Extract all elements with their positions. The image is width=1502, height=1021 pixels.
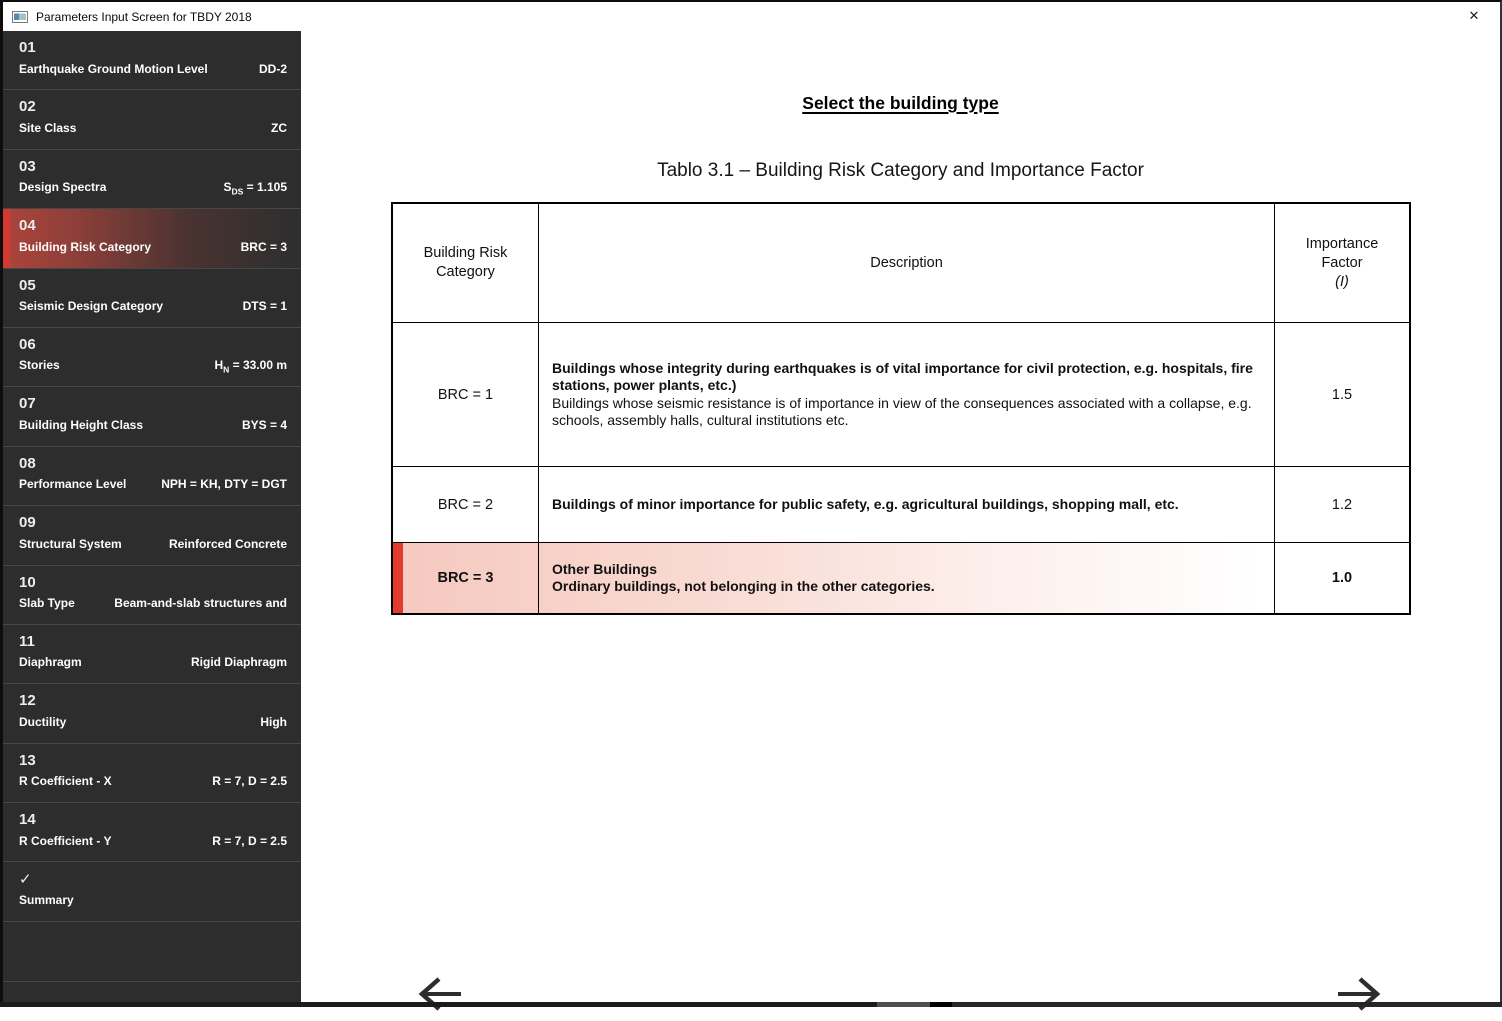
- step-number: 03: [19, 159, 287, 176]
- step-value: DD-2: [259, 62, 287, 76]
- value-subscript: DS: [231, 187, 243, 197]
- step-number: 06: [19, 337, 287, 354]
- step-label: Summary: [19, 893, 74, 907]
- back-arrow-button[interactable]: [415, 972, 467, 1016]
- sidebar-item-ductility[interactable]: 12 Ductility High: [3, 684, 301, 743]
- step-label: Seismic Design Category: [19, 299, 163, 313]
- step-value: HN = 33.00 m: [214, 358, 287, 374]
- table-caption: Tablo 3.1 – Building Risk Category and I…: [301, 160, 1500, 182]
- checkmark-icon: ✓: [19, 871, 287, 888]
- sidebar-item-building-height-class[interactable]: 07 Building Height Class BYS = 4: [3, 387, 301, 446]
- step-label: R Coefficient - X: [19, 774, 112, 788]
- sidebar-empty-cell: [3, 982, 301, 1002]
- sidebar-item-r-coefficient-y[interactable]: 14 R Coefficient - Y R = 7, D = 2.5: [3, 803, 301, 862]
- sidebar-item-seismic-design-category[interactable]: 05 Seismic Design Category DTS = 1: [3, 269, 301, 328]
- step-number: 10: [19, 575, 287, 592]
- window-title: Parameters Input Screen for TBDY 2018: [36, 10, 252, 24]
- sidebar-item-building-risk-category[interactable]: 04 Building Risk Category BRC = 3: [3, 209, 301, 268]
- step-value: SDS = 1.105: [223, 180, 287, 196]
- step-number: 05: [19, 278, 287, 295]
- description-cell: Other Buildings Ordinary buildings, not …: [539, 543, 1275, 613]
- step-number: 13: [19, 753, 287, 770]
- step-value: R = 7, D = 2.5: [212, 774, 287, 788]
- sidebar: 01 Earthquake Ground Motion Level DD-2 0…: [3, 31, 301, 1002]
- sidebar-item-earthquake-ground-motion-level[interactable]: 01 Earthquake Ground Motion Level DD-2: [3, 31, 301, 90]
- step-number: 12: [19, 693, 287, 710]
- header-description: Description: [539, 204, 1275, 323]
- step-value: DTS = 1: [243, 299, 287, 313]
- factor-cell: 1.0: [1275, 543, 1409, 613]
- step-label: Design Spectra: [19, 180, 106, 194]
- step-label: Ductility: [19, 715, 66, 729]
- sidebar-item-r-coefficient-x[interactable]: 13 R Coefficient - X R = 7, D = 2.5: [3, 744, 301, 803]
- sidebar-item-stories[interactable]: 06 Stories HN = 33.00 m: [3, 328, 301, 387]
- app-window: Parameters Input Screen for TBDY 2018 ✕ …: [0, 0, 1502, 1007]
- close-button[interactable]: ✕: [1463, 6, 1485, 28]
- description-cell: Buildings of minor importance for public…: [539, 467, 1275, 543]
- factor-cell: 1.5: [1275, 323, 1409, 467]
- step-value: NPH = KH, DTY = DGT: [161, 477, 287, 491]
- sidebar-item-summary[interactable]: ✓ Summary: [3, 862, 301, 921]
- step-label: R Coefficient - Y: [19, 834, 111, 848]
- sidebar-empty-cell: [3, 922, 301, 982]
- sidebar-item-design-spectra[interactable]: 03 Design Spectra SDS = 1.105: [3, 150, 301, 209]
- risk-table: Building Risk Category Description Impor…: [391, 202, 1411, 615]
- next-arrow-button[interactable]: [1332, 972, 1384, 1016]
- step-label: Slab Type: [19, 596, 75, 610]
- step-label: Earthquake Ground Motion Level: [19, 62, 208, 76]
- step-number: 11: [19, 634, 287, 651]
- main-panel: Select the building type Tablo 3.1 – Bui…: [301, 31, 1500, 1002]
- step-number: 02: [19, 99, 287, 116]
- step-number: 14: [19, 812, 287, 829]
- taskbar-segment: [930, 1002, 952, 1007]
- sidebar-item-site-class[interactable]: 02 Site Class ZC: [3, 90, 301, 149]
- step-number: 01: [19, 40, 287, 57]
- table-row-brc-2[interactable]: BRC = 2 Buildings of minor importance fo…: [393, 467, 1409, 543]
- taskbar-segment: [877, 1002, 930, 1007]
- taskbar-strip: [0, 1002, 1502, 1007]
- description-cell: Buildings whose integrity during earthqu…: [539, 323, 1275, 467]
- step-number: 04: [19, 218, 287, 235]
- step-value: BYS = 4: [242, 418, 287, 432]
- table-row-brc-1[interactable]: BRC = 1 Buildings whose integrity during…: [393, 323, 1409, 467]
- step-label: Performance Level: [19, 477, 126, 491]
- step-label: Building Risk Category: [19, 240, 151, 254]
- sidebar-item-performance-level[interactable]: 08 Performance Level NPH = KH, DTY = DGT: [3, 447, 301, 506]
- arrow-left-icon: [415, 972, 467, 1016]
- app-icon: [12, 10, 28, 24]
- step-value: ZC: [271, 121, 287, 135]
- step-label: Structural System: [19, 537, 122, 551]
- category-cell: BRC = 1: [393, 323, 539, 467]
- step-number: 09: [19, 515, 287, 532]
- category-cell: BRC = 2: [393, 467, 539, 543]
- category-cell: BRC = 3: [393, 543, 539, 613]
- step-value: Rigid Diaphragm: [191, 655, 287, 669]
- arrow-right-icon: [1332, 972, 1384, 1016]
- step-value: Reinforced Concrete: [169, 537, 287, 551]
- step-label: Stories: [19, 358, 60, 372]
- header-building-risk-category: Building Risk Category: [393, 204, 539, 323]
- step-value: Beam-and-slab structures and: [114, 596, 287, 610]
- step-number: 07: [19, 396, 287, 413]
- step-label: Diaphragm: [19, 655, 82, 669]
- sidebar-item-diaphragm[interactable]: 11 Diaphragm Rigid Diaphragm: [3, 625, 301, 684]
- window-titlebar: Parameters Input Screen for TBDY 2018 ✕: [3, 2, 1500, 31]
- table-header-row: Building Risk Category Description Impor…: [393, 204, 1409, 323]
- step-label: Building Height Class: [19, 418, 143, 432]
- step-value: High: [260, 715, 287, 729]
- sidebar-item-structural-system[interactable]: 09 Structural System Reinforced Concrete: [3, 506, 301, 565]
- header-importance-factor: Importance Factor (I): [1275, 204, 1409, 323]
- step-value: BRC = 3: [241, 240, 287, 254]
- table-row-brc-3-selected[interactable]: BRC = 3 Other Buildings Ordinary buildin…: [393, 543, 1409, 613]
- page-title: Select the building type: [301, 93, 1500, 114]
- step-number: 08: [19, 456, 287, 473]
- step-label: Site Class: [19, 121, 76, 135]
- taskbar-segment: [952, 1002, 1502, 1007]
- sidebar-item-slab-type[interactable]: 10 Slab Type Beam-and-slab structures an…: [3, 566, 301, 625]
- step-value: R = 7, D = 2.5: [212, 834, 287, 848]
- close-icon: ✕: [1469, 10, 1480, 23]
- factor-cell: 1.2: [1275, 467, 1409, 543]
